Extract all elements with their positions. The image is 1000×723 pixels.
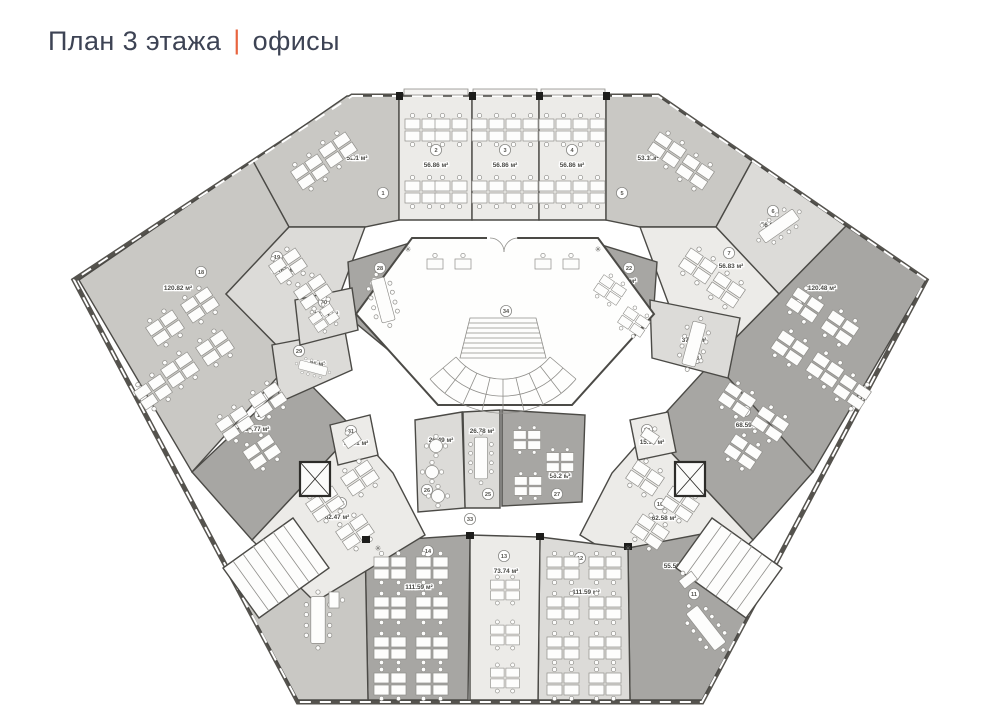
atrium-entrance-gap — [487, 233, 517, 242]
room-area-label: 73.74 м² — [494, 568, 519, 575]
room-number: 28 — [377, 266, 383, 272]
room-area-label: 53.1 м² — [637, 155, 658, 162]
room-number: 29 — [296, 349, 302, 355]
corridor-marker: 34 — [503, 309, 510, 315]
plant-icon: ✳ — [625, 544, 632, 553]
plant-icon: ✳ — [375, 544, 382, 553]
room-number: 22 — [626, 266, 632, 272]
balcony-strips — [404, 89, 605, 95]
room-number: 2 — [434, 148, 437, 154]
room-area-label: 56.86 м² — [560, 162, 585, 169]
room-number: 18 — [198, 270, 204, 276]
room-number: 5 — [620, 191, 623, 197]
room-number: 1 — [381, 191, 384, 197]
room-area-label: 56.86 м² — [424, 162, 449, 169]
elevator-right — [675, 462, 705, 496]
plant-icon: ✳ — [595, 245, 602, 254]
room-area-label: 62.58 м² — [652, 515, 677, 522]
room-number: 25 — [485, 492, 491, 498]
room-number: 7 — [727, 251, 730, 257]
floor-plan-page: План 3 этажа | офисы — [0, 0, 1000, 723]
room-number: 13 — [501, 554, 507, 560]
room-number: 26 — [424, 488, 430, 494]
room-area-label: 120.48 м² — [808, 285, 836, 292]
room-area-label: 56.83 м² — [719, 263, 744, 270]
floor-plan-svg: 153.1 м²256.86 м²356.86 м²456.86 м²553.1… — [0, 0, 1000, 723]
room-number: 11 — [691, 592, 697, 598]
room-area-label: 120.82 м² — [164, 285, 192, 292]
corridor-marker: 33 — [467, 517, 473, 523]
room-number: 3 — [503, 148, 506, 154]
room-area-label: 56.86 м² — [493, 162, 518, 169]
room-13: 1373.74 м² — [470, 535, 540, 700]
room-area-label: 111.59 м² — [405, 584, 432, 591]
room-number: 6 — [771, 209, 774, 215]
elevator-left — [300, 462, 330, 496]
room-number: 27 — [554, 492, 560, 498]
plant-icon: ✳ — [405, 245, 412, 254]
room-area-label: 53.1 м² — [346, 155, 367, 162]
